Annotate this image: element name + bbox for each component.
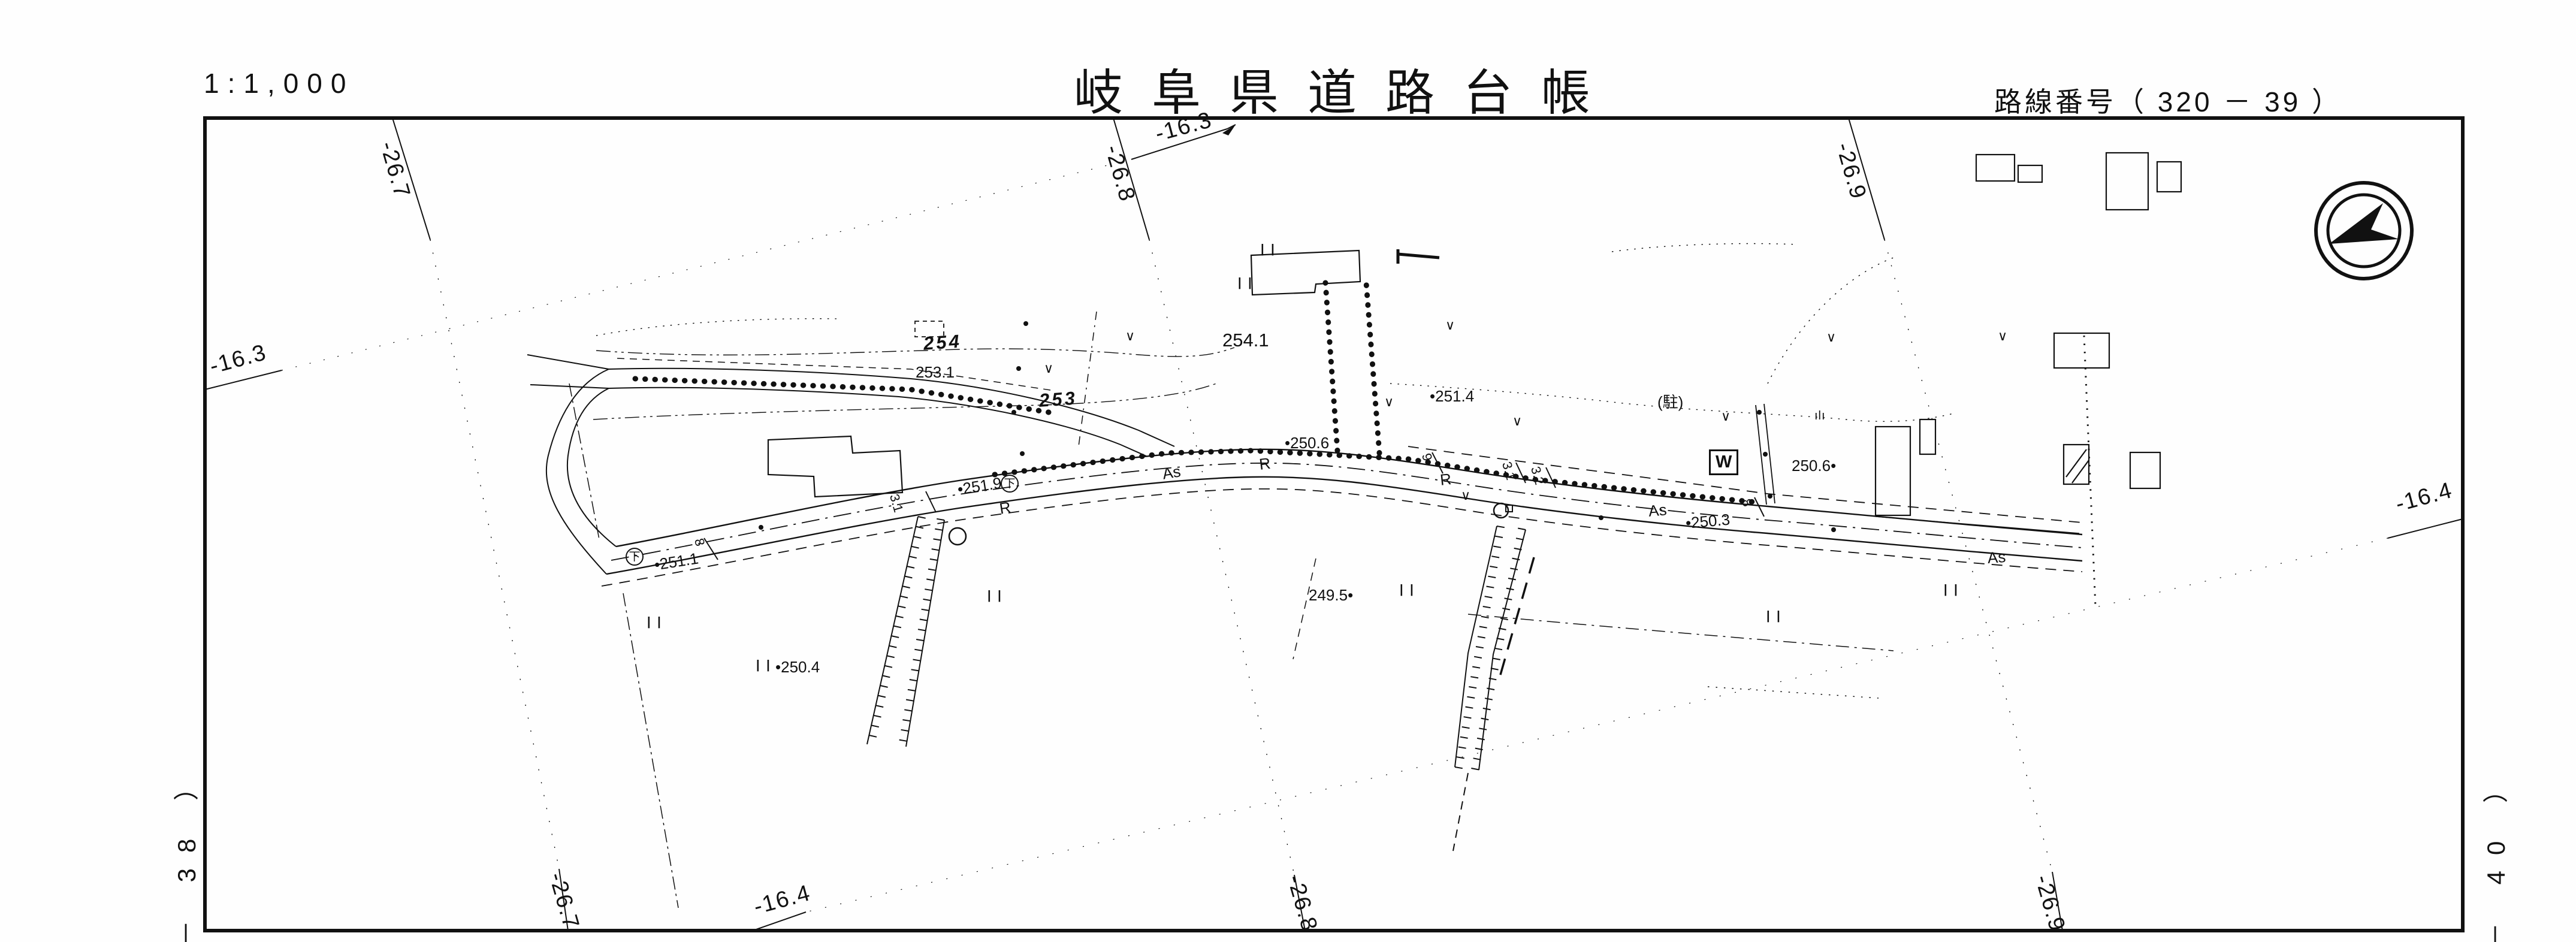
map-label: ∨ — [1044, 362, 1053, 375]
map-label: •250.3 — [1685, 512, 1731, 531]
map-label: ∨ — [1125, 330, 1135, 343]
map-label: 253 — [1038, 389, 1078, 410]
map-label: •250.6 — [1285, 435, 1329, 451]
sheet-ref-left: － 38 ） — [167, 760, 203, 942]
map-label: | | — [756, 659, 772, 671]
map-label: As — [1648, 502, 1667, 519]
map-label: | | — [1261, 243, 1276, 255]
map-label: 254.1 — [1222, 331, 1269, 349]
map-label: W — [1709, 449, 1738, 475]
map-label: | | — [1400, 584, 1415, 596]
map-label: 249.5• — [1309, 587, 1353, 603]
map-label: 下 — [626, 548, 644, 566]
map-label: As — [1161, 463, 1182, 481]
map-frame — [205, 118, 2463, 931]
map-drawing — [0, 0, 2576, 942]
map-label: 253.1 — [916, 364, 955, 380]
map-label: | | — [987, 590, 1003, 602]
map-label: As — [1987, 549, 2006, 566]
map-label: R — [1258, 455, 1272, 472]
scale-label: 1:1,000 — [204, 67, 354, 99]
map-label: ılı — [1814, 410, 1826, 422]
map-label: ∨ — [1445, 319, 1455, 332]
route-number-label: 路線番号（ 320 － 39 ） — [1994, 80, 2342, 120]
map-label: R — [1439, 471, 1452, 488]
page-title: 岐阜県道路台帳 — [1074, 53, 1619, 124]
north-arrow-icon — [2304, 171, 2424, 291]
map-label: | | — [1238, 277, 1254, 289]
map-label: 250.6• — [1792, 458, 1836, 473]
road-register-sheet: 1:1,000 岐阜県道路台帳 路線番号（ 320 － 39 ） － 38 ） … — [0, 0, 2576, 942]
map-label: •250.4 — [775, 659, 820, 675]
map-label: •251.4 — [1430, 388, 1474, 404]
map-label: ∨ — [1721, 410, 1731, 423]
map-label: ∨ — [1384, 395, 1394, 409]
map-label: (駐) — [1657, 394, 1683, 410]
map-label: 254 — [923, 332, 962, 353]
map-label: R — [998, 499, 1012, 517]
map-label: | | — [1766, 610, 1782, 622]
map-label: ∨ — [1826, 331, 1836, 344]
map-label: ∨ — [1998, 330, 2007, 343]
map-label: ∨ — [1461, 489, 1470, 502]
map-label: | | — [647, 616, 663, 628]
sheet-ref-right: － 40 ） — [2476, 762, 2512, 942]
map-label: 下 — [1001, 475, 1019, 493]
map-label: | | — [1944, 584, 1959, 596]
map-label: ∨ — [1512, 415, 1522, 428]
